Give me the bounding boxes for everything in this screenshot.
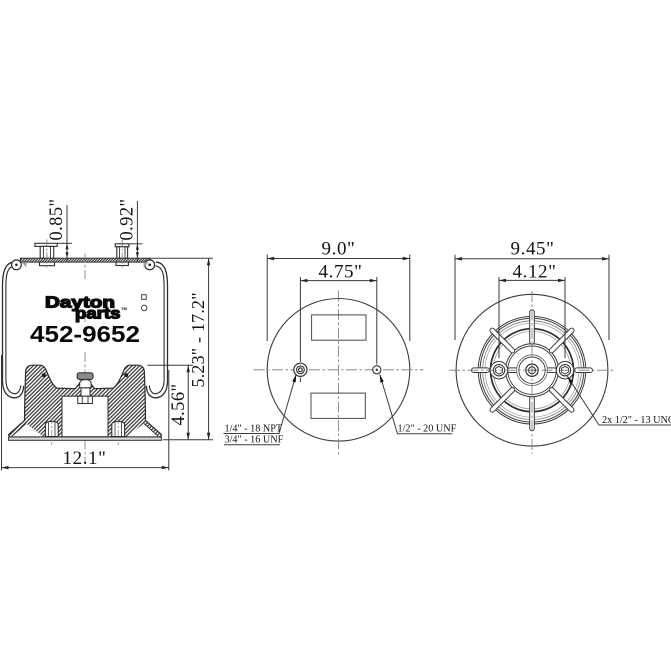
svg-text:12.1": 12.1" — [63, 448, 107, 469]
svg-text:9.0": 9.0" — [322, 238, 356, 259]
svg-text:0.85": 0.85" — [47, 199, 67, 241]
svg-text:5.23" - 17.2": 5.23" - 17.2" — [188, 292, 208, 387]
svg-text:1/4" - 18 NPT: 1/4" - 18 NPT — [225, 423, 283, 434]
svg-text:0.92": 0.92" — [117, 199, 137, 241]
svg-text:9.45": 9.45" — [511, 238, 555, 259]
svg-text:4.75": 4.75" — [319, 262, 363, 283]
svg-text:3/4" - 16 UNF: 3/4" - 16 UNF — [225, 435, 284, 446]
svg-text:2x 1/2" - 13 UNC: 2x 1/2" - 13 UNC — [602, 415, 671, 426]
svg-text:1/2" - 20 UNF: 1/2" - 20 UNF — [398, 423, 457, 434]
svg-text:TM: TM — [121, 306, 127, 311]
svg-text:4.12": 4.12" — [513, 261, 557, 282]
svg-text:452-9652: 452-9652 — [30, 321, 140, 347]
svg-text:4.56": 4.56" — [169, 384, 189, 426]
